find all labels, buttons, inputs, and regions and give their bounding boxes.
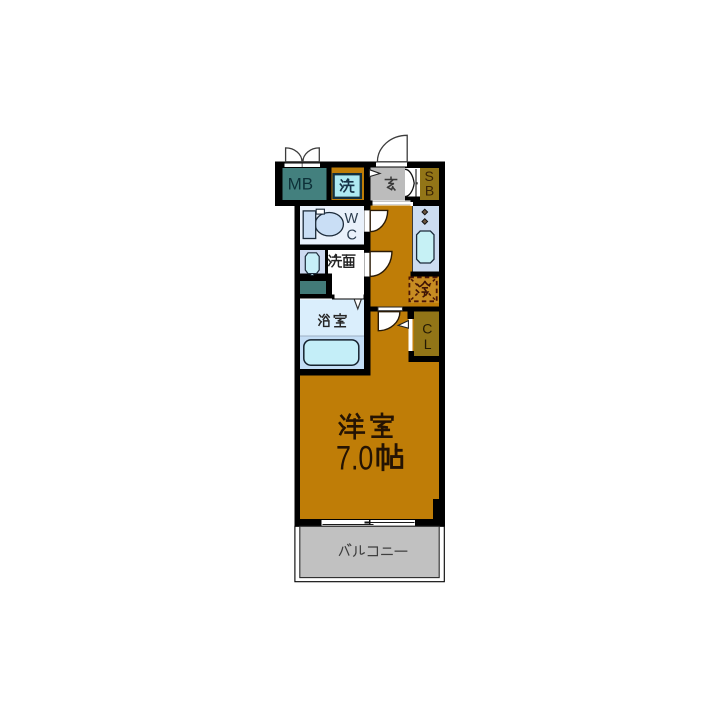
svg-text:C: C [422, 321, 432, 337]
svg-text:L: L [424, 336, 432, 352]
svg-text:C: C [347, 227, 357, 243]
svg-text:7.0: 7.0 [336, 439, 373, 477]
svg-text:B: B [425, 182, 434, 198]
svg-text:MB: MB [288, 174, 314, 193]
svg-text:W: W [344, 211, 358, 227]
